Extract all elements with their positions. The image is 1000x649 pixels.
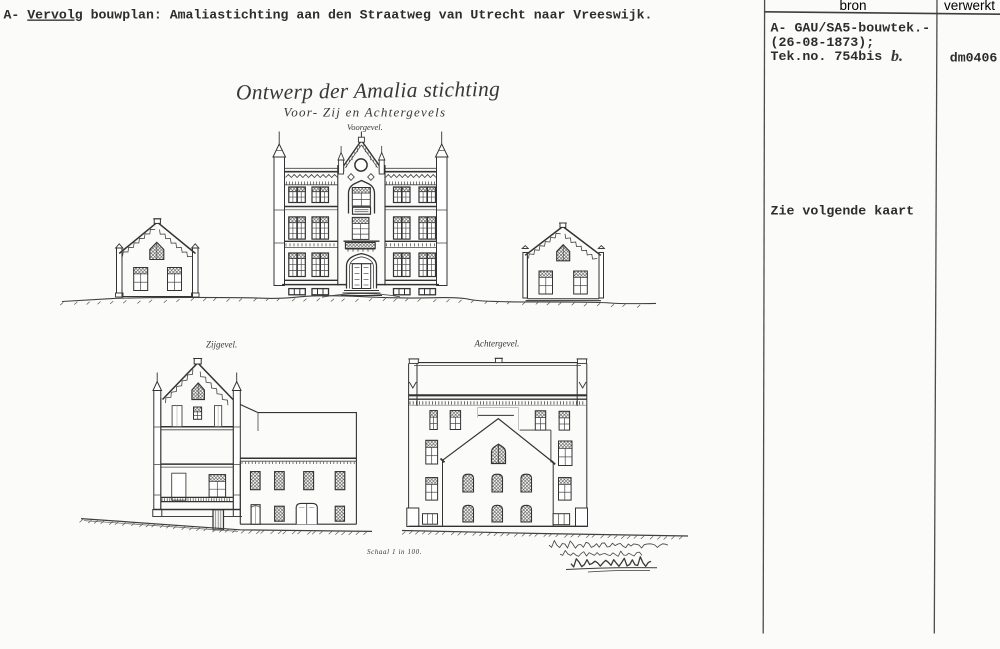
svg-text:dm0406: dm0406 xyxy=(950,50,998,65)
svg-text:verwerkt: verwerkt xyxy=(944,0,995,13)
svg-text:Tek.no. 754bis: Tek.no. 754bis xyxy=(771,49,883,64)
svg-text:bron: bron xyxy=(839,0,866,13)
svg-text:Zijgevel.: Zijgevel. xyxy=(206,340,237,350)
svg-text:b.: b. xyxy=(891,48,903,65)
svg-text:Zie volgende kaart: Zie volgende kaart xyxy=(771,204,915,219)
svg-text:A- Vervolg bouwplan: Amaliasti: A- Vervolg bouwplan: Amaliastichting aan… xyxy=(4,8,653,23)
svg-text:A- GAU/SA5-bouwtek.-: A- GAU/SA5-bouwtek.- xyxy=(771,21,931,36)
svg-text:Achtergevel.: Achtergevel. xyxy=(474,339,520,349)
svg-text:Schaal 1 in 100.: Schaal 1 in 100. xyxy=(367,548,422,556)
svg-text:Ontwerp der Amalia stichting: Ontwerp der Amalia stichting xyxy=(236,77,501,105)
svg-text:Voorgevel.: Voorgevel. xyxy=(347,122,383,132)
svg-text:(26-08-1873);: (26-08-1873); xyxy=(771,35,875,50)
svg-text:Voor- Zij en Achtergevels: Voor- Zij en Achtergevels xyxy=(284,105,447,120)
